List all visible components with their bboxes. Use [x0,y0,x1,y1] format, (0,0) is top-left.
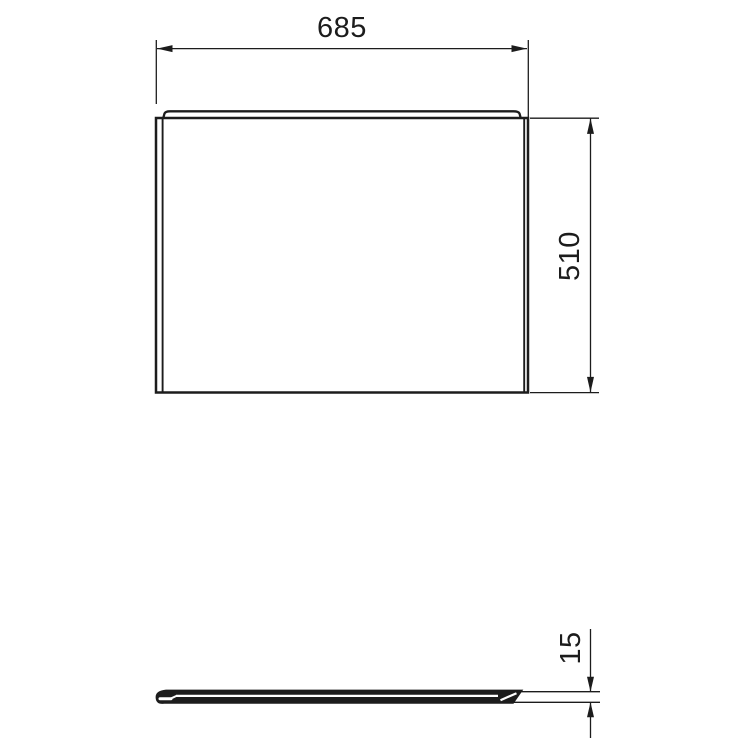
profile-view [156,690,524,704]
width-arrow-left [157,45,173,52]
front-view [156,111,528,392]
technical-drawing-canvas: 685 510 15 [0,0,750,750]
panel-outline [156,118,528,393]
panel-top-lip [164,111,521,117]
thickness-arrow-top [587,677,594,692]
height-arrow-top [587,118,594,133]
width-dimension-label: 685 [302,11,382,45]
thickness-dimension-label: 15 [554,618,588,678]
technical-drawing [0,0,750,750]
height-dimension-label: 510 [553,216,587,296]
thickness-arrow-bottom [587,702,594,717]
width-arrow-right [512,45,528,52]
width-dimension [156,40,528,117]
height-arrow-bottom [587,377,594,393]
